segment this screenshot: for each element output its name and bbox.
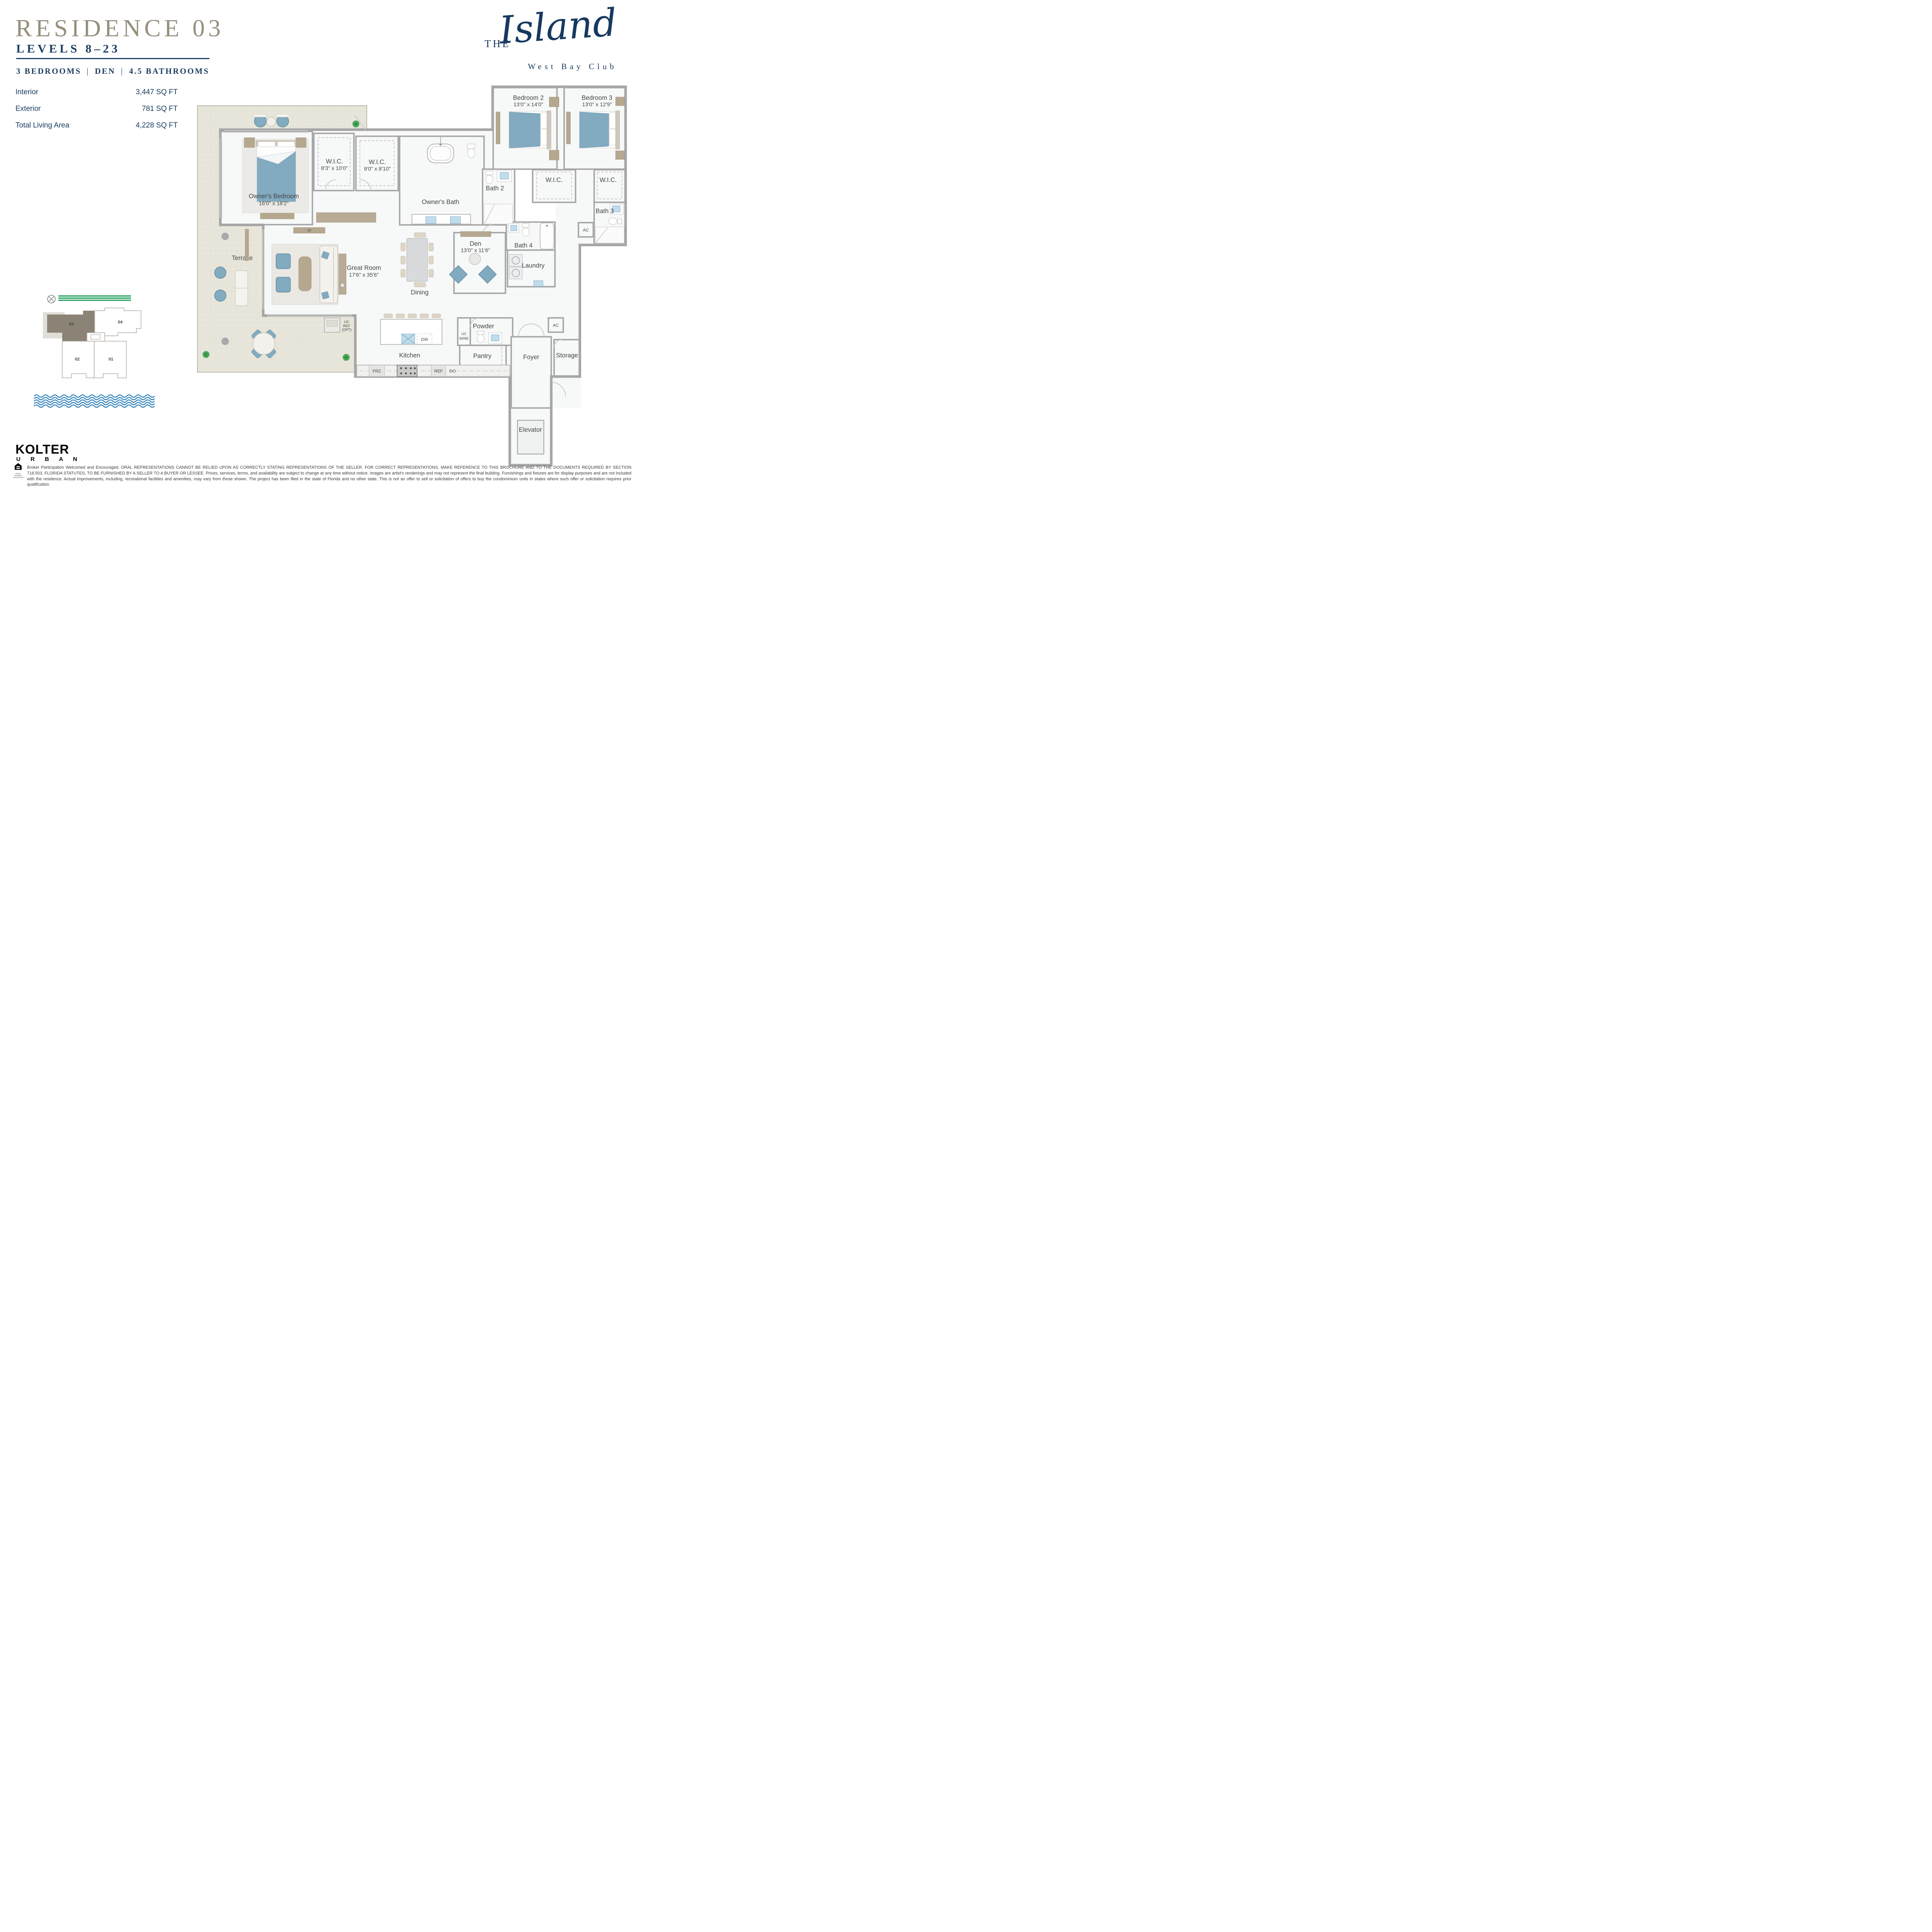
ac-label: AC bbox=[553, 323, 559, 328]
wic2-label: W.I.C. bbox=[369, 158, 386, 165]
header-divider bbox=[16, 58, 209, 59]
brochure-page: RESIDENCE 03 LEVELS 8–23 3 BEDROOMS|DEN|… bbox=[0, 0, 638, 493]
uc-ref-label3: (OPT) bbox=[342, 328, 352, 332]
bedroom3-dims: 13'0" x 12'9" bbox=[582, 101, 612, 107]
features-line: 3 BEDROOMS|DEN|4.5 BATHROOMS bbox=[16, 66, 209, 76]
elevator-label: Elevator bbox=[519, 426, 542, 433]
foyer-label: Foyer bbox=[523, 354, 539, 361]
den-label: Den bbox=[470, 240, 481, 247]
feature-separator: | bbox=[81, 66, 95, 76]
owners-bedroom-dims: 16'0" x 18'2" bbox=[259, 200, 289, 206]
wic3-label: W.I.C. bbox=[546, 177, 563, 184]
keyplan: 03 04 02 01 bbox=[29, 284, 160, 412]
bath4-label: Bath 4 bbox=[514, 242, 532, 249]
uc-ref-label2: REF bbox=[343, 324, 350, 328]
brand-club: West Bay Club bbox=[528, 62, 617, 71]
ac-label: AC bbox=[583, 228, 588, 233]
wic2-dims: 9'0" x 8'10" bbox=[364, 165, 391, 172]
sink-icon bbox=[450, 217, 461, 224]
wic3-room bbox=[533, 170, 576, 202]
toilet-icon bbox=[468, 148, 475, 158]
shoreline-lines bbox=[58, 296, 131, 300]
terrace-label: Terrace bbox=[232, 255, 253, 262]
uc-wine-label: UC bbox=[461, 332, 467, 336]
great-room-dims: 17'6" x 35'6" bbox=[349, 272, 379, 278]
uc-ref-label: UC bbox=[344, 320, 350, 324]
levels-subtitle: LEVELS 8–23 bbox=[16, 42, 120, 56]
column-icon bbox=[221, 233, 229, 240]
kitchen-label: Kitchen bbox=[399, 352, 420, 359]
den-dims: 13'0" x 11'6" bbox=[461, 247, 490, 253]
legal-disclaimer: Broker Participation Welcomed and Encour… bbox=[27, 465, 631, 488]
stat-label: Exterior bbox=[15, 105, 41, 113]
kolter-urban: U R B A N bbox=[16, 456, 82, 463]
stat-value: 4,228 SQ FT bbox=[136, 121, 178, 130]
laundry-label: Laundry bbox=[522, 262, 545, 269]
area-stats: Interior 3,447 SQ FT Exterior 781 SQ FT … bbox=[15, 88, 178, 138]
storage-label: Storage bbox=[556, 352, 578, 359]
uc-wine-closet bbox=[458, 318, 471, 345]
dw-label: DW bbox=[421, 337, 428, 342]
powder-label: Powder bbox=[473, 323, 495, 330]
do-label: DO bbox=[449, 369, 456, 374]
powder-fixtures bbox=[477, 331, 502, 344]
compass-icon bbox=[48, 295, 55, 303]
floorplan: Terrace bbox=[195, 80, 636, 492]
great-room-label: Great Room bbox=[347, 264, 381, 271]
kolter-logo: KOLTER bbox=[15, 442, 69, 457]
wic1-dims: 8'3" x 10'0" bbox=[321, 165, 348, 171]
sink-icon bbox=[426, 217, 436, 224]
ref-label: REF bbox=[434, 369, 443, 374]
toilet-icon bbox=[468, 144, 475, 149]
brand-logo: THE Island West Bay Club bbox=[479, 7, 635, 75]
keyplan-unit02: 02 bbox=[75, 357, 80, 362]
terrace-table-icon bbox=[251, 329, 276, 359]
pantry-label: Pantry bbox=[473, 352, 492, 359]
equal-housing-icon: EQUAL HOUSING OPPORTUNITY bbox=[13, 462, 23, 478]
feature-bedrooms: 3 BEDROOMS bbox=[16, 66, 81, 76]
elevator-cab bbox=[517, 420, 544, 454]
feature-baths: 4.5 BATHROOMS bbox=[129, 66, 209, 76]
owners-bath-label: Owner's Bath bbox=[422, 199, 459, 206]
feature-den: DEN bbox=[95, 66, 115, 76]
stat-label: Interior bbox=[15, 88, 38, 97]
stat-row: Interior 3,447 SQ FT bbox=[15, 88, 178, 97]
column-icon bbox=[221, 338, 229, 345]
stat-label: Total Living Area bbox=[15, 121, 69, 130]
owners-bedroom-label: Owner's Bedroom bbox=[249, 193, 299, 200]
keyplan-unit04: 04 bbox=[118, 320, 123, 325]
equal-housing-text: EQUAL HOUSING OPPORTUNITY bbox=[13, 473, 23, 478]
stat-value: 3,447 SQ FT bbox=[136, 88, 178, 97]
sink-icon bbox=[534, 281, 543, 286]
keyplan-unit01: 01 bbox=[109, 357, 113, 362]
uc-wine-label2: WINE bbox=[459, 337, 469, 340]
waves-icon bbox=[34, 395, 155, 407]
range bbox=[397, 365, 417, 377]
wic4-label: W.I.C. bbox=[600, 177, 617, 184]
stat-row: Total Living Area 4,228 SQ FT bbox=[15, 121, 178, 130]
feature-separator: | bbox=[116, 66, 129, 76]
foyer-room bbox=[511, 337, 551, 418]
bedroom2-label: Bedroom 2 bbox=[513, 95, 544, 102]
bath3-label: Bath 3 bbox=[596, 208, 614, 215]
keyplan-unit03: 03 bbox=[69, 322, 74, 327]
brand-name: Island bbox=[498, 1, 618, 53]
stat-value: 781 SQ FT bbox=[142, 105, 178, 113]
dining-label: Dining bbox=[411, 289, 429, 296]
building-footprint: 03 04 02 01 bbox=[43, 308, 141, 378]
stat-row: Exterior 781 SQ FT bbox=[15, 105, 178, 113]
bedroom3-label: Bedroom 3 bbox=[582, 95, 612, 102]
page-title: RESIDENCE 03 bbox=[15, 14, 224, 43]
wic4-room bbox=[594, 170, 625, 202]
wic1-label: W.I.C. bbox=[326, 158, 343, 165]
bath2-label: Bath 2 bbox=[486, 185, 504, 192]
frz-label: FRZ bbox=[372, 369, 381, 374]
owners-bed-icon bbox=[242, 138, 309, 219]
bedroom2-dims: 13'0" x 14'0" bbox=[514, 101, 543, 107]
